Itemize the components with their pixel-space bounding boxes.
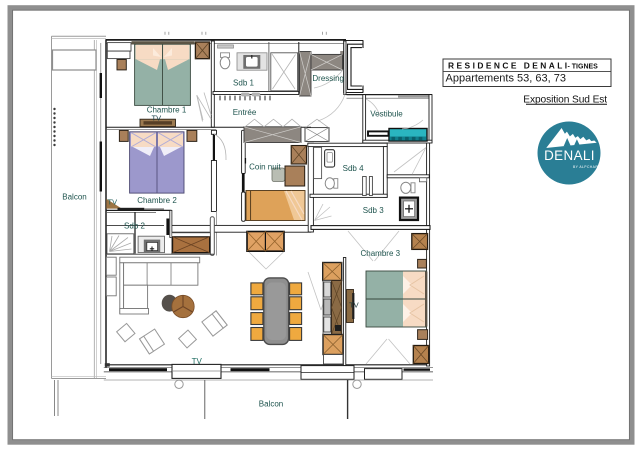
svg-text:Sdb 4: Sdb 4 bbox=[343, 164, 364, 173]
svg-text:BY ALPCHARME: BY ALPCHARME bbox=[573, 165, 604, 169]
svg-text:Coin nuit: Coin nuit bbox=[249, 163, 281, 172]
svg-text:Appartements 53, 63, 73: Appartements 53, 63, 73 bbox=[446, 73, 566, 85]
svg-text:TV: TV bbox=[192, 357, 203, 366]
svg-text:Chambre 1: Chambre 1 bbox=[147, 106, 187, 115]
svg-text:- TIGNES: - TIGNES bbox=[568, 63, 599, 70]
svg-text:Exposition Sud Est: Exposition Sud Est bbox=[523, 94, 607, 105]
svg-text:Chambre 2: Chambre 2 bbox=[137, 196, 177, 205]
svg-text:Chambre 3: Chambre 3 bbox=[361, 249, 401, 258]
svg-text:Balcon: Balcon bbox=[259, 400, 283, 409]
svg-text:RESIDENCE DENALI: RESIDENCE DENALI bbox=[448, 61, 570, 71]
svg-text:DENALI: DENALI bbox=[544, 148, 595, 163]
svg-text:Dressing: Dressing bbox=[312, 74, 344, 83]
svg-text:Sdb 2: Sdb 2 bbox=[124, 222, 145, 231]
svg-text:Entrée: Entrée bbox=[233, 108, 257, 117]
svg-text:Sdb 3: Sdb 3 bbox=[363, 206, 384, 215]
svg-text:Sdb 1: Sdb 1 bbox=[233, 79, 254, 88]
svg-text:TV: TV bbox=[108, 198, 118, 207]
svg-text:TV: TV bbox=[349, 301, 360, 310]
svg-text:Balcon: Balcon bbox=[62, 193, 86, 202]
svg-text:TV: TV bbox=[152, 113, 162, 122]
svg-text:Vestibule: Vestibule bbox=[370, 110, 403, 119]
